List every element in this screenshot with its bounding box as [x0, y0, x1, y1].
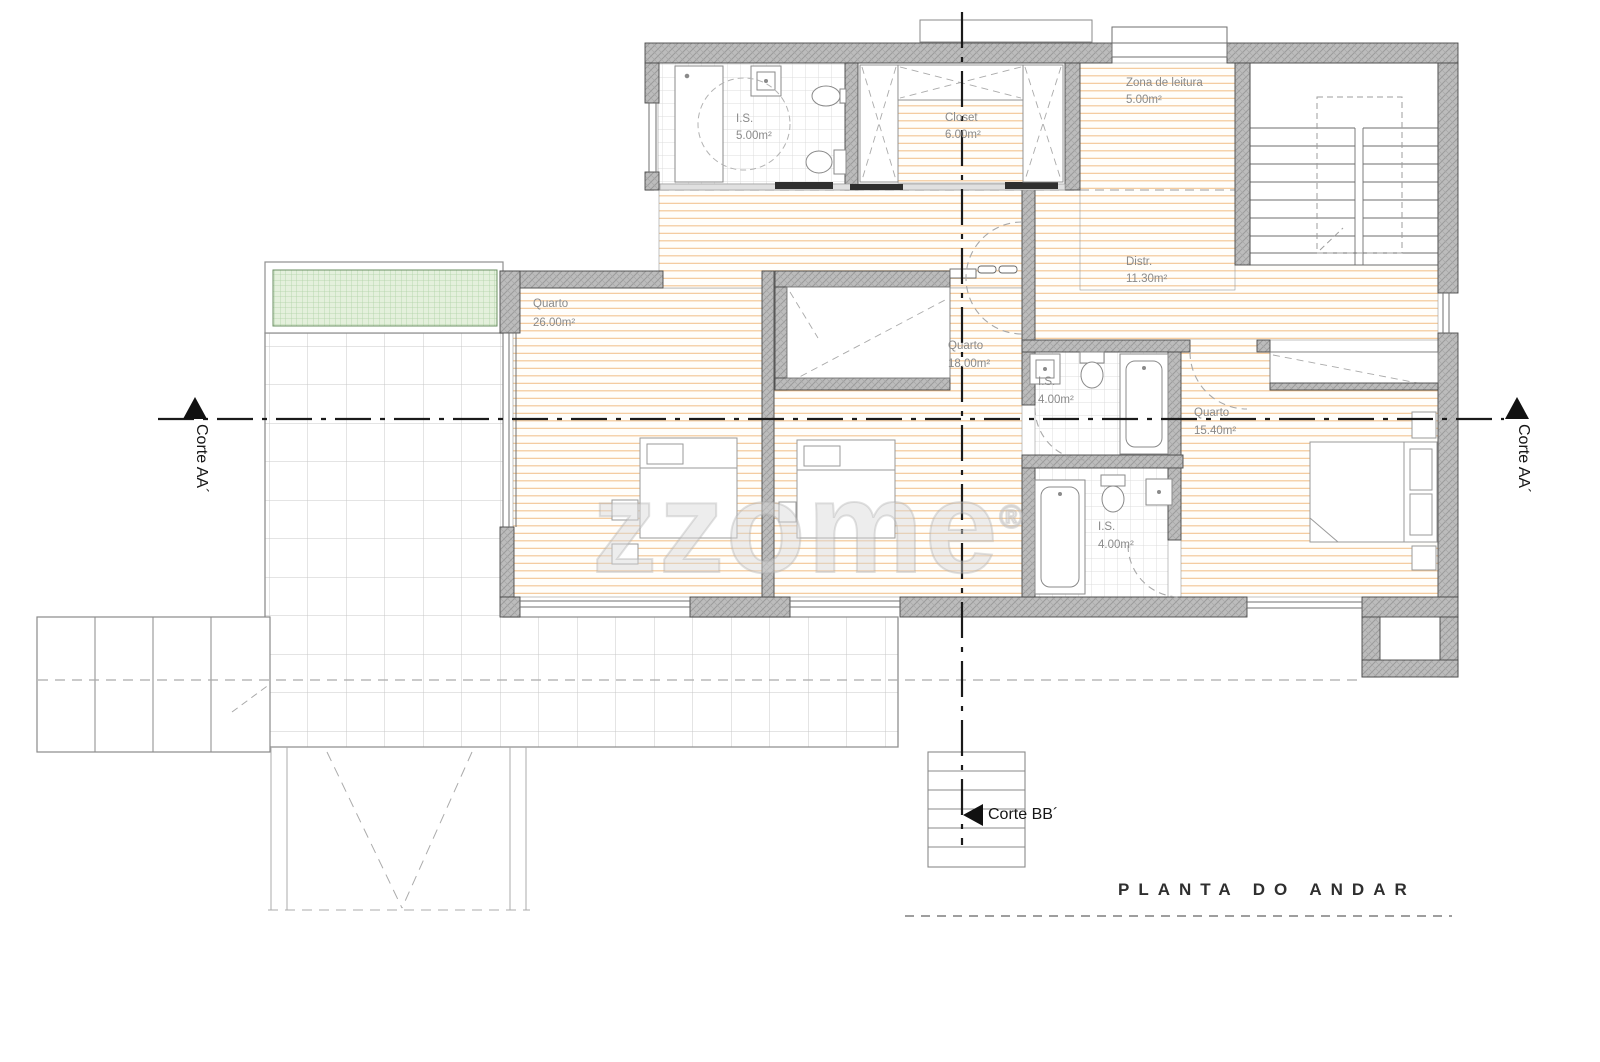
section-label-aa-left: Corte AA´ — [193, 424, 209, 493]
exterior-steps-left — [37, 617, 270, 752]
plan-title: PLANTA DO ANDAR — [1118, 880, 1416, 900]
room-closet-area: 6.00m² — [945, 130, 981, 142]
watermark-text: zzome — [592, 454, 999, 600]
room-q15-area: 15.40m² — [1194, 426, 1236, 438]
room-q18-area: 18.00m² — [948, 359, 990, 371]
room-is5-area: 5.00m² — [736, 131, 772, 143]
room-q15-name: Quarto — [1194, 408, 1229, 420]
room-distr-name: Distr. — [1126, 257, 1152, 269]
room-is4l-name: I.S. — [1098, 522, 1115, 534]
planter — [273, 270, 497, 326]
section-label-aa-right: Corte AA´ — [1515, 424, 1531, 493]
room-q18-name: Quarto — [948, 341, 983, 353]
room-is4u-area: 4.00m² — [1038, 395, 1074, 407]
room-distr-area: 11.30m² — [1126, 274, 1167, 286]
section-arrow-aa-left-icon — [183, 397, 207, 419]
floor-plan-canvas: zzome® I.S. 5.00m² Closet 6.00m² Zona de… — [0, 0, 1600, 1062]
section-label-bb: Corte BB´ — [988, 807, 1058, 823]
room-is4u-name: I.S. — [1038, 377, 1055, 389]
room-is5-name: I.S. — [736, 114, 753, 126]
room-zona-name: Zona de leitura — [1126, 78, 1203, 90]
section-arrow-aa-right-icon — [1505, 397, 1529, 419]
room-zona-area: 5.00m² — [1126, 95, 1162, 107]
room-closet-name: Closet — [945, 113, 978, 125]
room-is4l-area: 4.00m² — [1098, 540, 1134, 552]
room-q26-name: Quarto — [533, 299, 568, 311]
staircase — [1250, 63, 1438, 265]
room-q26-area: 26.00m² — [533, 318, 575, 330]
watermark: zzome® — [592, 452, 1025, 602]
watermark-reg: ® — [999, 499, 1025, 535]
